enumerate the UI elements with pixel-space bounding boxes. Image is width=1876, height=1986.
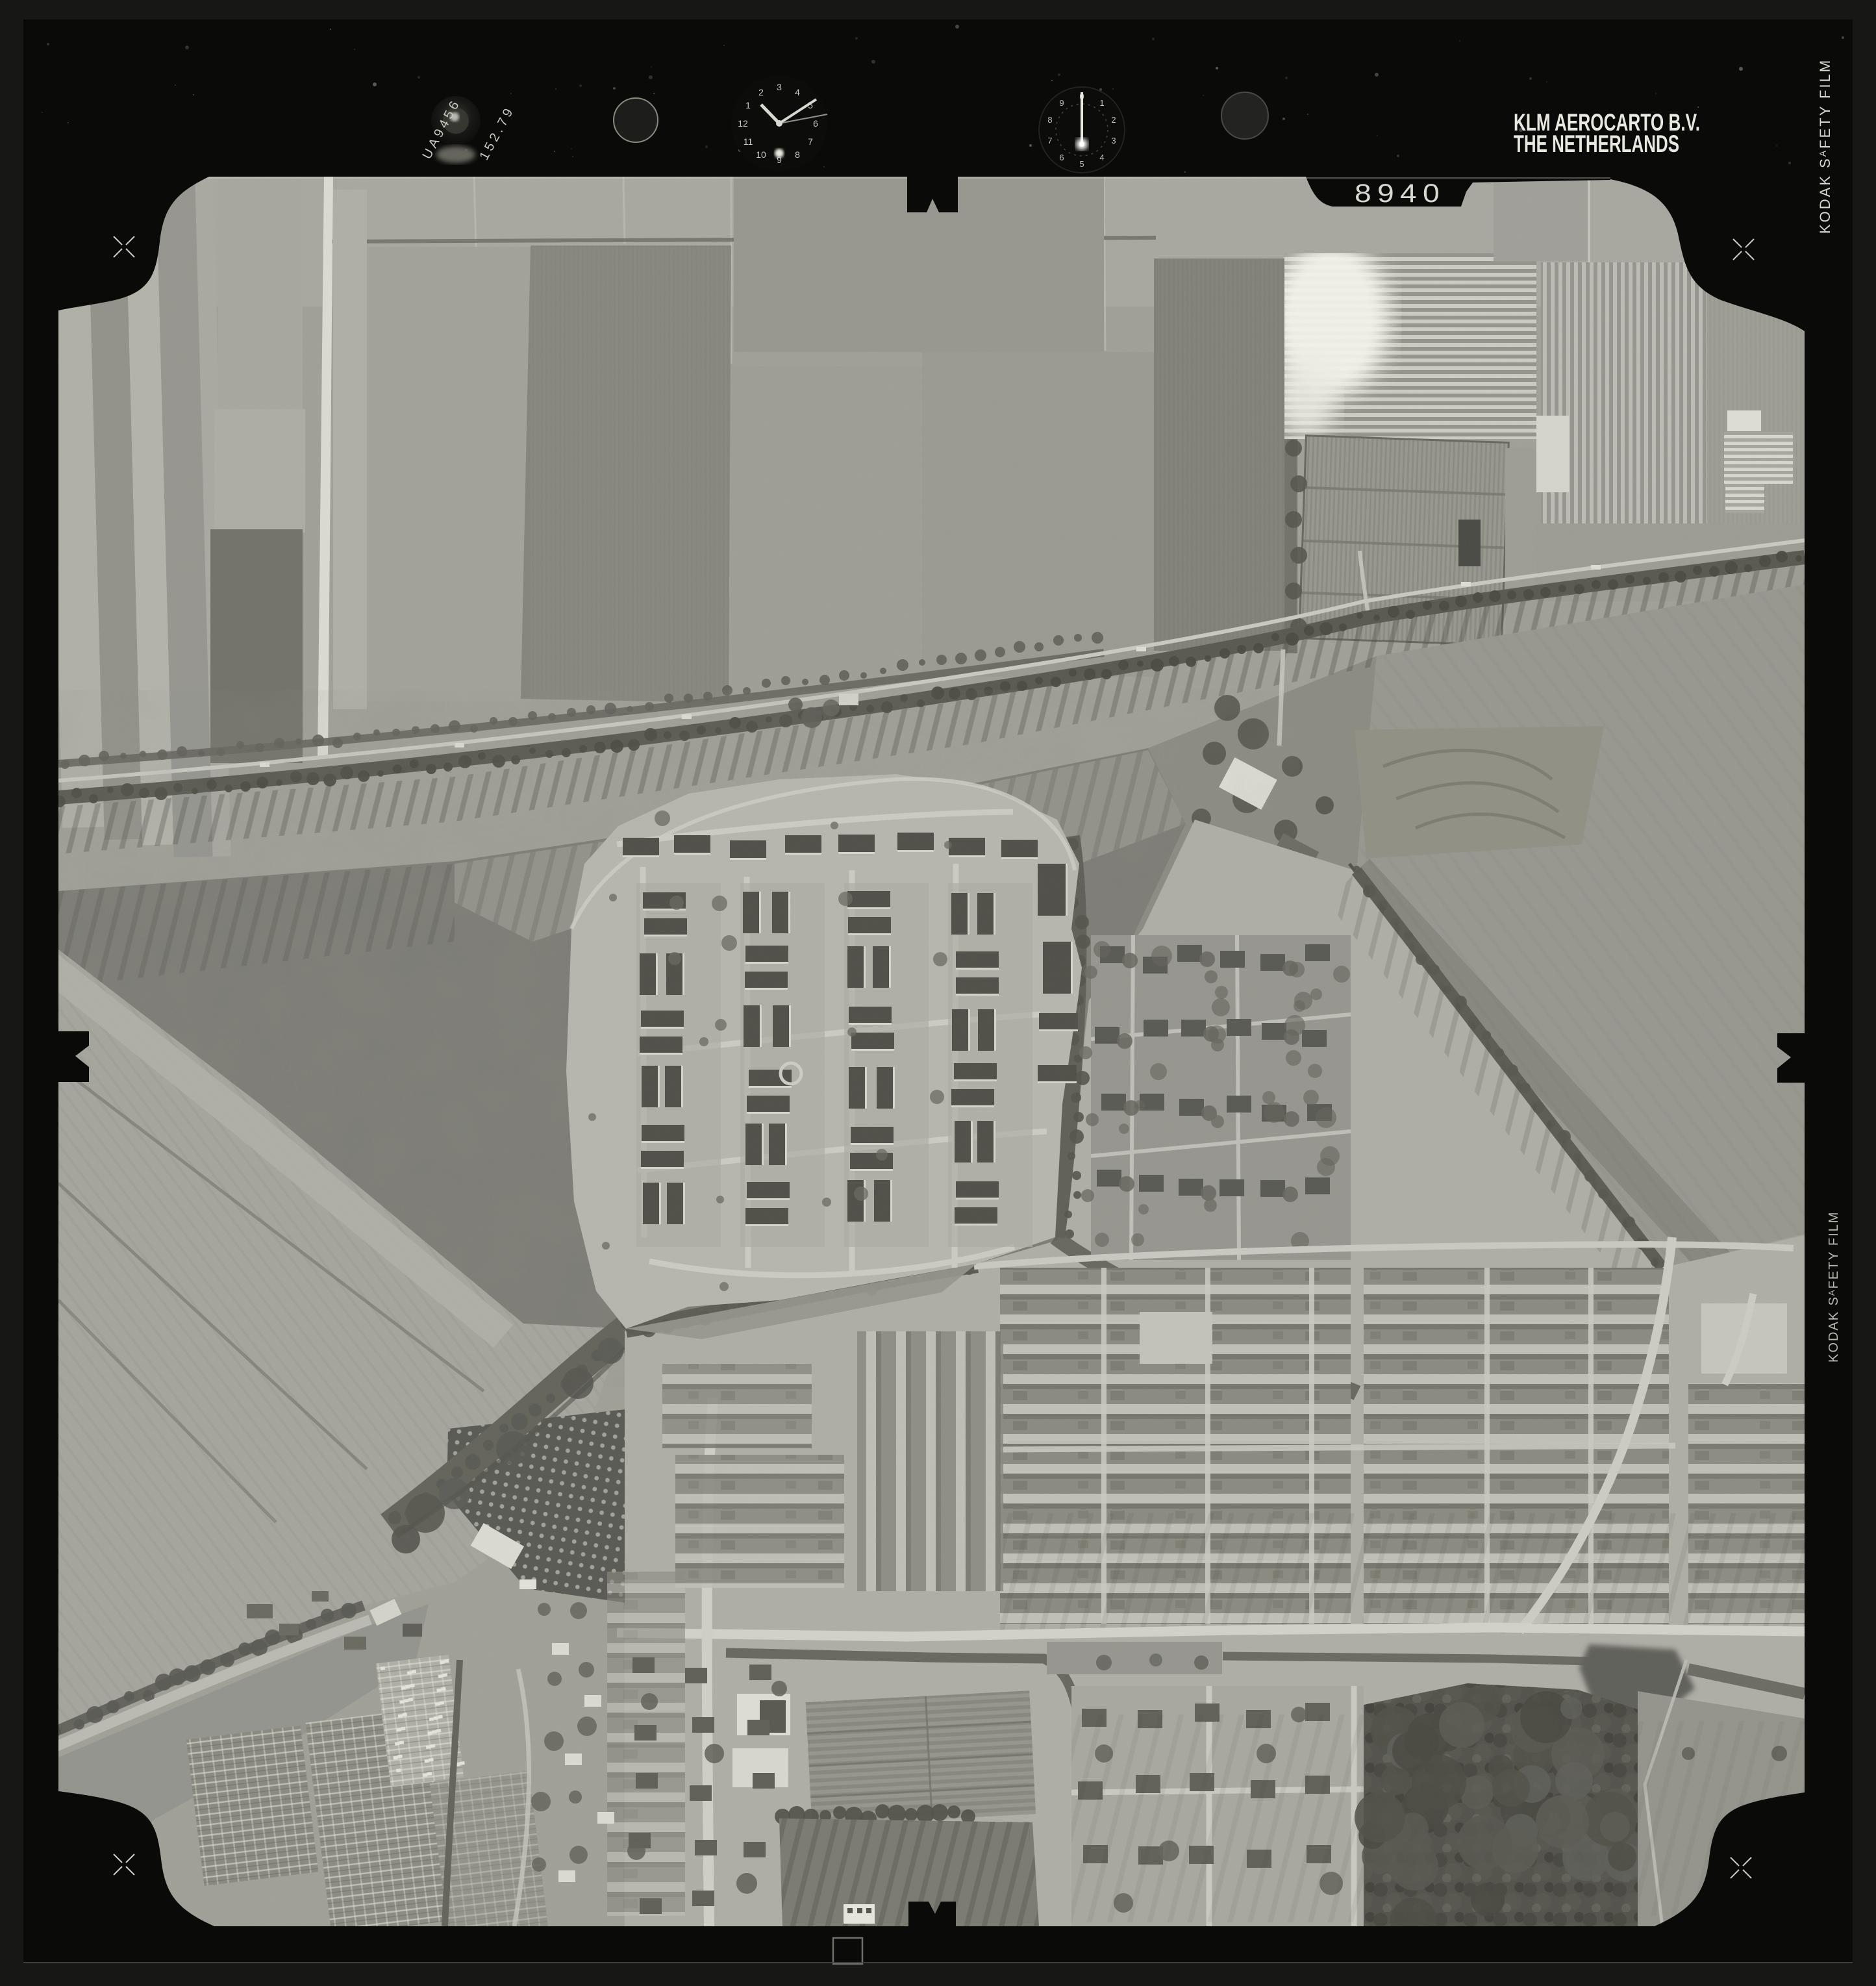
svg-text:9: 9 (1059, 98, 1064, 108)
svg-text:7: 7 (808, 136, 813, 147)
svg-text:2: 2 (758, 87, 764, 97)
svg-text:THE NETHERLANDS: THE NETHERLANDS (1514, 131, 1679, 157)
svg-text:8: 8 (1047, 115, 1052, 125)
svg-text:6: 6 (813, 118, 818, 129)
svg-text:2: 2 (1111, 115, 1116, 125)
svg-text:KODAK SAFETY FILM: KODAK SAFETY FILM (1817, 58, 1833, 234)
svg-text:5: 5 (1079, 159, 1084, 169)
svg-text:KODAK SAFETY FILM: KODAK SAFETY FILM (1827, 1211, 1841, 1363)
svg-text:3: 3 (1111, 136, 1116, 145)
svg-text:1: 1 (745, 100, 751, 110)
svg-text:4: 4 (795, 87, 800, 97)
svg-text:8940: 8940 (1355, 179, 1445, 208)
svg-text:3: 3 (777, 82, 782, 92)
svg-text:4: 4 (1099, 153, 1104, 162)
svg-text:7: 7 (1047, 136, 1052, 145)
svg-text:12: 12 (738, 118, 748, 129)
svg-text:8: 8 (795, 149, 800, 160)
svg-text:11: 11 (744, 136, 753, 147)
svg-text:6: 6 (1059, 153, 1064, 162)
svg-text:1: 1 (1099, 98, 1104, 108)
svg-text:10: 10 (756, 149, 766, 160)
